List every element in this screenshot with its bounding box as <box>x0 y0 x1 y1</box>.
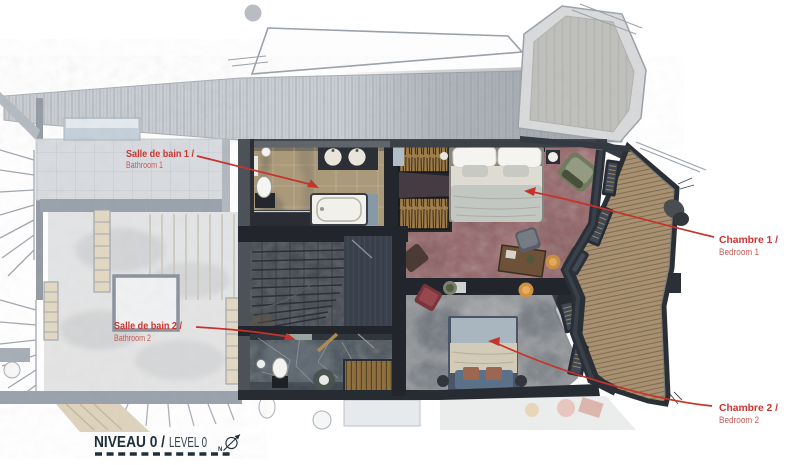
svg-text:Bedroom 1: Bedroom 1 <box>719 247 759 257</box>
svg-text:Bathroom 1: Bathroom 1 <box>126 160 163 170</box>
svg-text:N: N <box>218 447 222 453</box>
svg-text:Chambre 1 /: Chambre 1 / <box>719 235 778 246</box>
svg-text:Bedroom 2: Bedroom 2 <box>719 415 759 425</box>
svg-text:Salle de bain 1 /: Salle de bain 1 / <box>126 149 194 160</box>
svg-text:Bathroom 2: Bathroom 2 <box>114 333 151 343</box>
svg-text:NIVEAU 0 /: NIVEAU 0 / <box>94 434 166 451</box>
svg-text:Chambre 2 /: Chambre 2 / <box>719 403 778 414</box>
svg-text:LEVEL 0: LEVEL 0 <box>169 434 207 451</box>
svg-text:Salle de bain 2 /: Salle de bain 2 / <box>114 321 182 332</box>
